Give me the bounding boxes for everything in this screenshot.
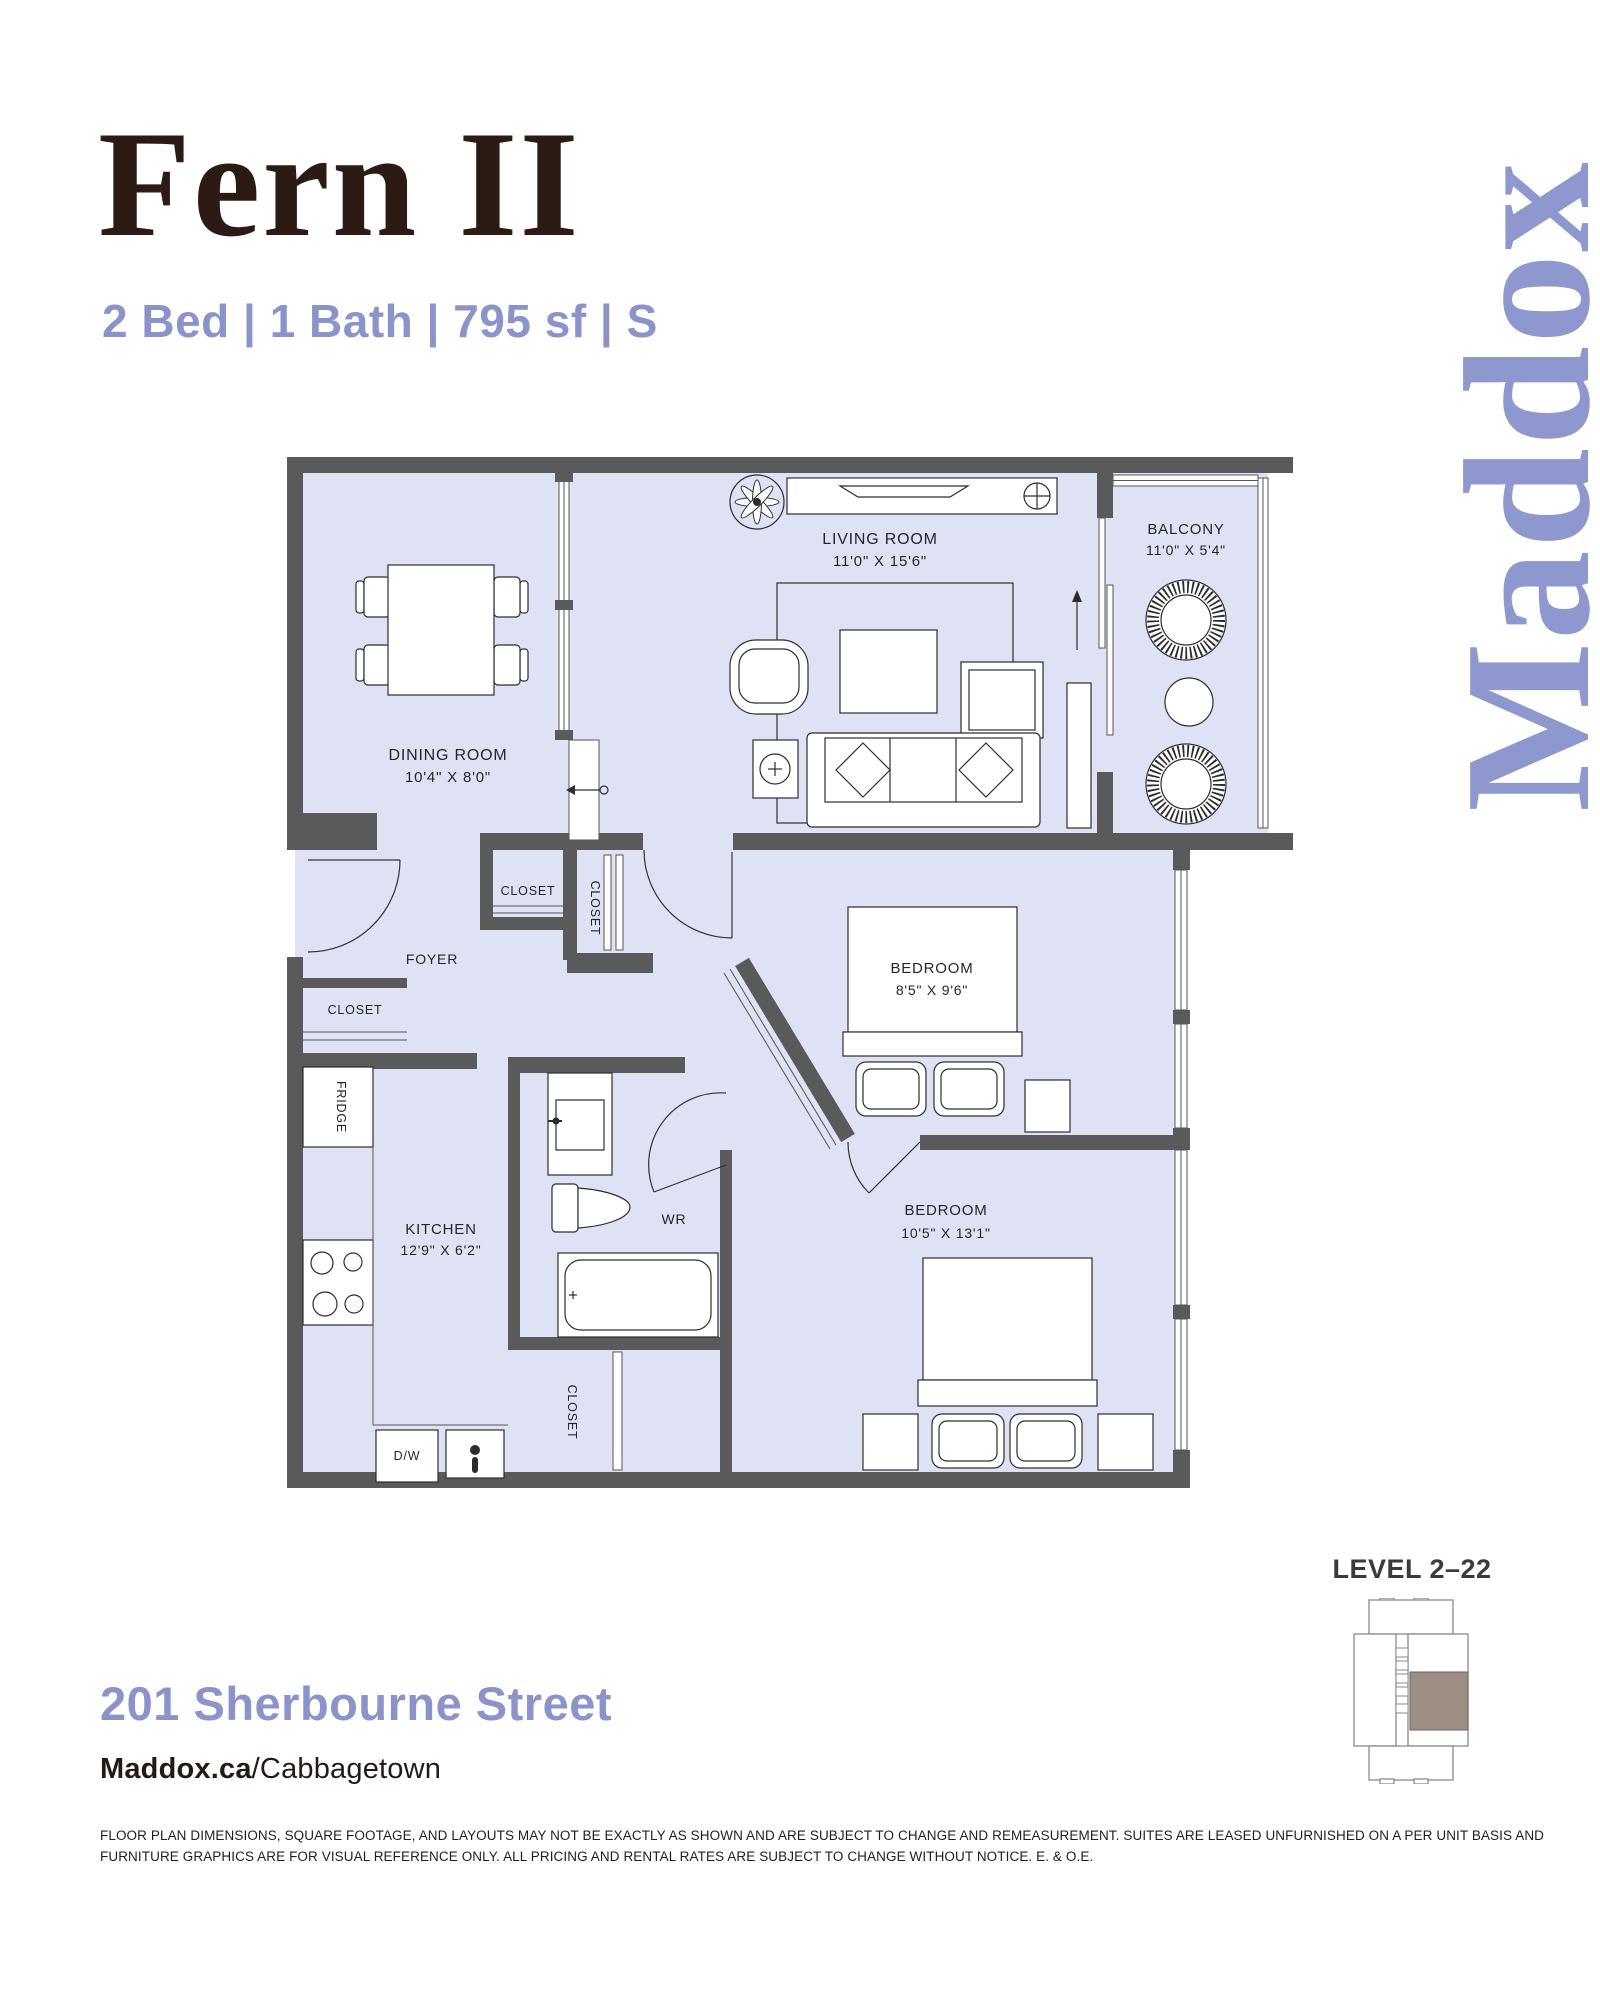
room-label-bedroom2: BEDROOM [904,1202,987,1219]
stove [303,1240,373,1325]
dishwasher-label: D/W [394,1449,421,1463]
room-dims-dining: 10'4" X 8'0" [405,769,491,786]
room-dims-bedroom1: 8'5" X 9'6" [896,982,968,998]
room-label-bedroom1: BEDROOM [890,960,973,977]
page-title: Fern II [98,108,581,260]
room-dims-bedroom2: 10'5" X 13'1" [901,1225,991,1241]
accent-chair [961,662,1043,738]
closet-label: CLOSET [588,881,602,936]
closet-label: CLOSET [565,1385,579,1440]
room-label-dining: DINING ROOM [388,747,507,764]
keyplan-level-label: LEVEL 2–22 [1330,1554,1494,1585]
closet-label: CLOSET [328,1003,383,1017]
website-line: Maddox.ca/Cabbagetown [100,1753,441,1786]
keyplan-unit-highlight [1410,1672,1468,1730]
kitchen-sink [446,1430,504,1478]
balcony-chair [1146,580,1226,660]
building-address: 201 Sherbourne Street [100,1676,612,1731]
planter [1067,683,1091,828]
unit-specs: 2 Bed | 1 Bath | 795 sf | S [102,294,658,348]
room-label-balcony: BALCONY [1147,521,1224,538]
room-label-wr: WR [662,1211,687,1227]
brand-logo: Maddox [1438,160,1600,812]
legal-disclaimer-line: FLOOR PLAN DIMENSIONS, SQUARE FOOTAGE, A… [100,1826,1560,1847]
room-label-foyer: FOYER [406,951,458,967]
closet-label: CLOSET [501,884,556,898]
bathroom-vanity [548,1073,612,1175]
fridge-label: FRIDGE [334,1081,348,1133]
room-dims-balcony: 11'0" X 5'4" [1146,542,1226,558]
legal-disclaimer-line: FURNITURE GRAPHICS ARE FOR VISUAL REFERE… [100,1847,1560,1868]
side-table-lamp [753,740,798,798]
ceiling-fan-icon [730,475,784,529]
media-console [787,478,1057,514]
room-label-living: LIVING ROOM [822,531,937,548]
building-keyplan [1352,1598,1470,1784]
legal-disclaimer: FLOOR PLAN DIMENSIONS, SQUARE FOOTAGE, A… [100,1826,1560,1867]
room-dims-living: 11'0" X 15'6" [833,553,927,570]
balcony-chair [1146,744,1226,824]
armchair [730,640,808,714]
bathtub [558,1253,718,1337]
floorplan: LIVING ROOM 11'0" X 15'6" BALCONY 11'0" … [280,450,1310,1505]
website-neighbourhood: /Cabbagetown [252,1753,441,1785]
room-dims-kitchen: 12'9" X 6'2" [401,1242,482,1258]
balcony-table [1165,678,1213,726]
website-url: Maddox.ca [100,1753,252,1785]
room-label-kitchen: KITCHEN [405,1221,476,1238]
coffee-table [840,630,937,713]
sofa [807,733,1040,827]
